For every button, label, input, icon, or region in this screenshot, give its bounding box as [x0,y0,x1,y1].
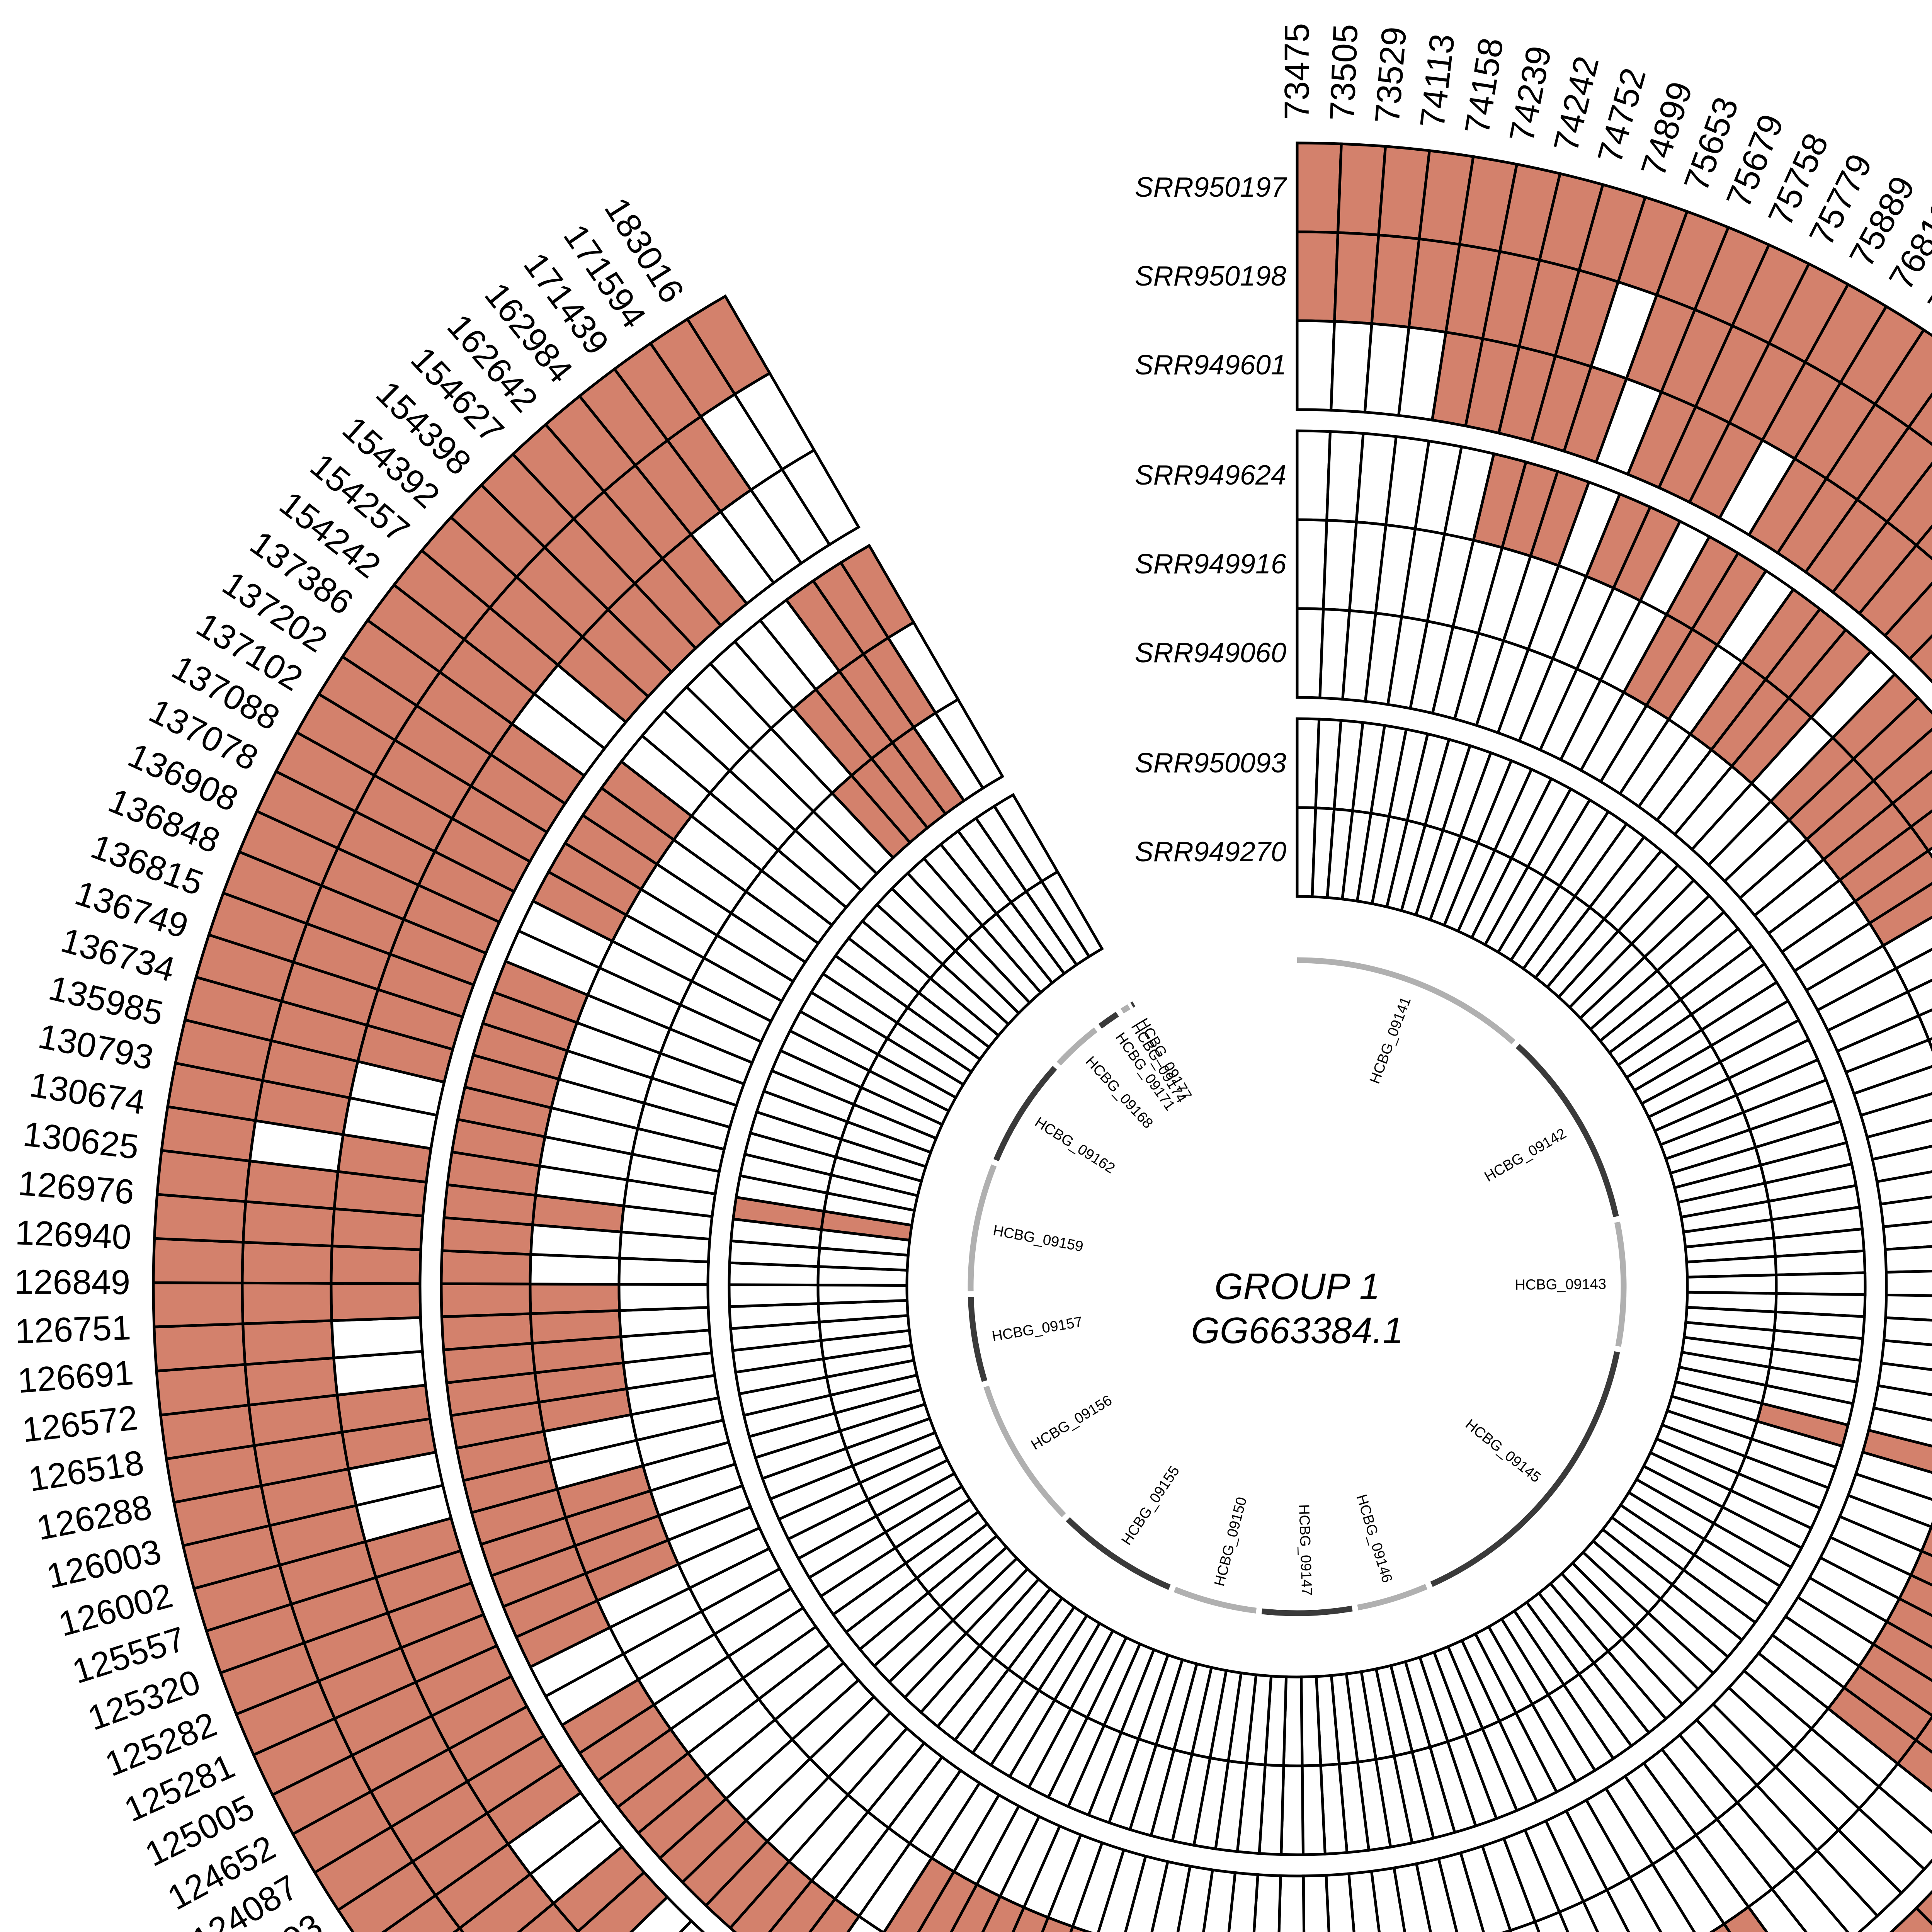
svg-text:126751: 126751 [14,1308,132,1351]
svg-text:SRR949916: SRR949916 [1135,549,1287,580]
svg-text:HCBG_09143: HCBG_09143 [1515,1276,1606,1293]
svg-text:126849: 126849 [14,1263,130,1302]
svg-text:SRR949270: SRR949270 [1135,837,1286,867]
svg-text:SRR950198: SRR950198 [1135,261,1286,292]
svg-text:SRR950093: SRR950093 [1135,748,1286,779]
svg-text:126940: 126940 [15,1213,132,1257]
svg-text:73475: 73475 [1278,23,1316,120]
svg-text:HCBG_09147: HCBG_09147 [1296,1504,1315,1596]
svg-text:SRR949624: SRR949624 [1135,460,1286,491]
svg-text:GG663384.1: GG663384.1 [1191,1310,1403,1351]
svg-text:73529: 73529 [1368,26,1414,125]
svg-text:SRR950197: SRR950197 [1135,172,1287,203]
svg-text:SRR949601: SRR949601 [1135,350,1286,381]
svg-text:SRR949060: SRR949060 [1135,638,1286,668]
svg-text:73505: 73505 [1323,23,1366,121]
svg-text:GROUP 1: GROUP 1 [1214,1266,1380,1307]
